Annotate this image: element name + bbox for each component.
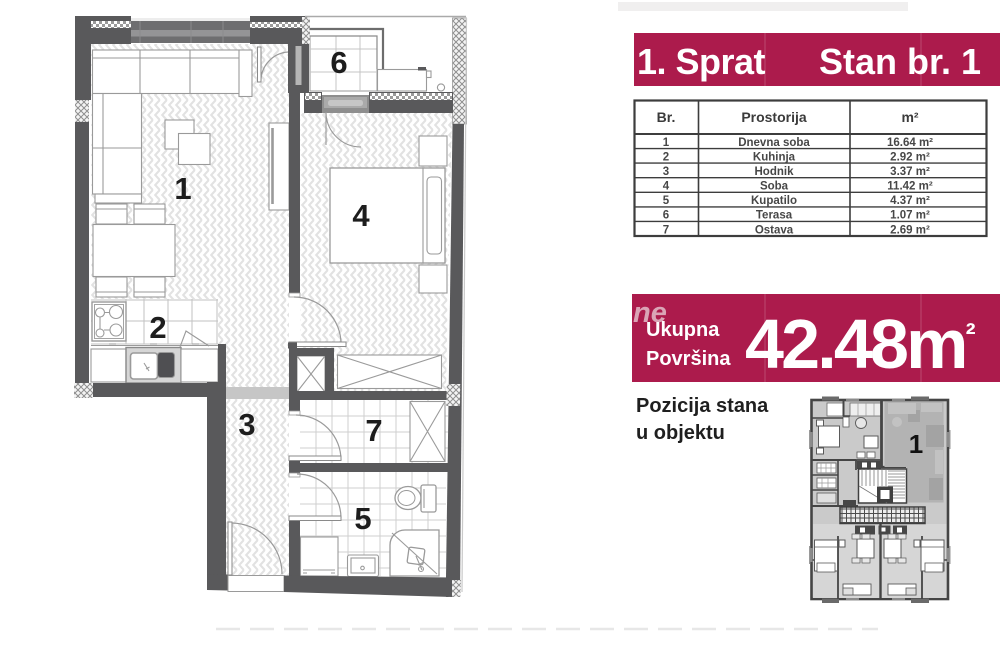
svg-text:4: 4 — [352, 198, 370, 233]
svg-text:Prostorija: Prostorija — [741, 109, 807, 125]
svg-text:Ostava: Ostava — [755, 224, 794, 236]
svg-text:Dnevna soba: Dnevna soba — [738, 137, 810, 149]
svg-text:Stan br. 1: Stan br. 1 — [819, 41, 981, 82]
svg-text:Soba: Soba — [760, 181, 789, 193]
svg-text:6: 6 — [330, 45, 347, 80]
svg-text:3.37 m²: 3.37 m² — [890, 166, 930, 178]
svg-text:Kuhinja: Kuhinja — [753, 152, 796, 164]
svg-text:5: 5 — [663, 195, 670, 207]
svg-text:7: 7 — [663, 224, 669, 236]
svg-text:42.48m²: 42.48m² — [745, 305, 976, 383]
svg-text:16.64 m²: 16.64 m² — [887, 137, 933, 149]
svg-text:7: 7 — [365, 413, 382, 448]
svg-text:1: 1 — [909, 429, 923, 459]
svg-text:Pozicija stana: Pozicija stana — [636, 395, 769, 417]
svg-text:2: 2 — [663, 152, 669, 164]
svg-text:1. Sprat: 1. Sprat — [637, 41, 766, 82]
svg-text:11.42 m²: 11.42 m² — [887, 181, 933, 193]
svg-text:3: 3 — [663, 166, 669, 178]
svg-text:2: 2 — [149, 310, 166, 345]
svg-text:3: 3 — [238, 407, 255, 442]
svg-text:2.69 m²: 2.69 m² — [890, 224, 930, 236]
svg-text:m²: m² — [901, 109, 918, 125]
svg-text:1.07 m²: 1.07 m² — [890, 210, 930, 222]
svg-text:1: 1 — [174, 171, 191, 206]
svg-text:Kupatilo: Kupatilo — [751, 195, 797, 207]
svg-text:5: 5 — [354, 501, 371, 536]
svg-text:Površina: Površina — [646, 348, 731, 370]
svg-text:u objektu: u objektu — [636, 422, 725, 444]
svg-text:Hodnik: Hodnik — [755, 166, 795, 178]
svg-text:4: 4 — [663, 181, 670, 193]
svg-text:1: 1 — [663, 137, 670, 149]
svg-text:Br.: Br. — [657, 109, 676, 125]
svg-text:4.37 m²: 4.37 m² — [890, 195, 930, 207]
svg-text:Ukupna: Ukupna — [646, 319, 720, 341]
svg-text:2.92 m²: 2.92 m² — [890, 152, 930, 164]
svg-text:6: 6 — [663, 210, 669, 222]
svg-text:Terasa: Terasa — [756, 210, 793, 222]
